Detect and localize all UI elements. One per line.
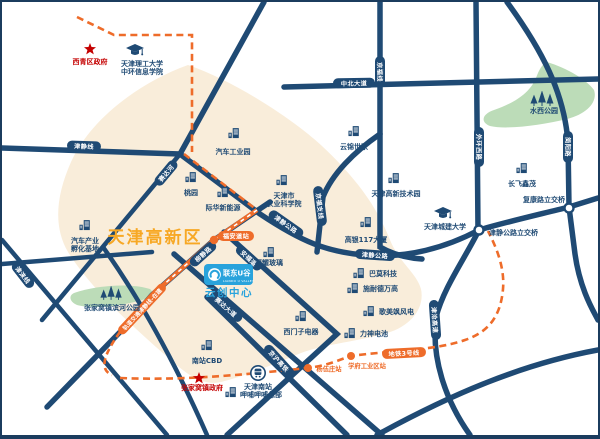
poi-label: 呷哺呷哺总部 (240, 390, 282, 399)
svg-text:外环西路: 外环西路 (474, 134, 482, 161)
poi-label: 高银117大厦 (345, 235, 389, 244)
station-dot-fuandao (210, 236, 218, 244)
poi-yunjin-shijia: 云锦世家 (340, 126, 369, 151)
railway-station-icon (251, 366, 265, 380)
graduation-cap-icon-chengjian (434, 207, 452, 218)
center-name: 云创中心 (205, 286, 253, 299)
poi-label: 长飞鑫茂 (508, 179, 536, 188)
svg-text:津静线: 津静线 (74, 142, 94, 151)
logo-brand-text: 联东U谷 (223, 269, 251, 278)
poi-label: 西门子电器 (284, 327, 320, 336)
svg-text:福安道站: 福安道站 (222, 233, 250, 241)
poi-label: 天津市 (274, 191, 295, 200)
station-dot-xuefu (347, 352, 355, 360)
poi-label: 汽车工业园 (216, 147, 251, 156)
road-pill-jingfu: 京福线 (375, 56, 385, 88)
road-pill-jinjing-line: 津静线 (67, 140, 101, 151)
location-map: 津静线 中北大道 京福线 外环西路 简阳路 京福支线 津静公路 津静公路 津沧高… (0, 0, 600, 439)
label-shuixi-park: 水西公园 (530, 106, 558, 115)
metro-pill-line3: 地铁3号线 (382, 347, 426, 359)
jinjing-interchange-node (475, 226, 484, 235)
shuixi-park-area (484, 62, 595, 127)
poi-bamo-tech: 巴莫科技 (353, 268, 398, 278)
poi-label: 力神电池 (360, 329, 388, 338)
svg-text:中北大道: 中北大道 (341, 79, 368, 87)
poi-changfei-xinmao: 长飞鑫茂 (508, 163, 536, 188)
road-jingfu-line (380, 2, 422, 259)
road-pill-zhongbei: 中北大道 (333, 78, 375, 89)
poi-gamesa-wind: 歌美飒风电 (363, 306, 414, 316)
label-fukang-interchange: 复康路立交桥 (522, 195, 566, 204)
graduation-cap-icon-tjut (126, 44, 144, 55)
poi-lishen-battery: 力神电池 (344, 328, 388, 338)
building-icon (348, 126, 358, 136)
fukang-interchange-node (565, 204, 574, 213)
label-jinjing-interchange: 津静公路立交桥 (489, 228, 539, 237)
svg-text:京福线: 京福线 (375, 62, 383, 82)
poi-label: 施耐德万高 (363, 284, 398, 293)
metro-pill-fuandao-station: 福安道站 (218, 231, 254, 241)
road-jianyang (507, 2, 598, 320)
poi-label: 云锦世家 (340, 142, 369, 151)
label-binhe-park: 张家窝镇滨河公园 (84, 303, 140, 312)
map-canvas: 津静线 中北大道 京福线 外环西路 简阳路 京福支线 津静公路 津静公路 津沧高… (2, 2, 598, 435)
logo-brand-en-text: LIANDO U VALLEY (223, 279, 254, 283)
label-chengjian-univ: 天津城建大学 (424, 222, 466, 231)
label-zhangjiawo-gov: 张家窝镇政府 (181, 383, 223, 392)
label-tjut-line2: 中环信息学院 (121, 67, 163, 76)
road-waihuan-west (476, 2, 478, 230)
station-dot-yangwuzhuang (304, 364, 312, 372)
zone-title: 天津高新区 (108, 227, 203, 248)
poi-label: 孵化基地 (71, 244, 99, 253)
poi-label: 农业科学院 (266, 199, 302, 208)
poi-label: 桃园 (184, 188, 198, 197)
svg-text:地铁3号线: 地铁3号线 (388, 349, 420, 359)
poi-label: 际华新能源 (206, 203, 241, 212)
road-pill-jianyang: 简阳路 (563, 131, 573, 163)
building-icon (388, 173, 398, 183)
road-pill-waihuan-west: 外环西路 (474, 127, 484, 167)
poi-label: 福耀玻璃 (254, 258, 283, 267)
building-icon (516, 163, 526, 173)
poi-label: 汽车产业 (71, 236, 99, 245)
poi-label: 巴莫科技 (369, 269, 398, 278)
star-icon-xiqing (84, 43, 96, 54)
building-icon (225, 387, 235, 397)
label-xiqing-gov: 西青区政府 (73, 57, 108, 66)
road-southeast-corner (377, 350, 598, 435)
svg-text:简阳路: 简阳路 (563, 137, 571, 157)
poi-label: 歌美飒风电 (379, 307, 414, 316)
label-tjut-line1: 天津理工大学 (121, 59, 163, 68)
liando-logo: 联东U谷 LIANDO U VALLEY (204, 264, 254, 285)
label-tianjin-south-station: 天津南站 (244, 382, 272, 391)
poi-label: 南站CBD (192, 356, 222, 365)
poi-label: 天津高新技术园 (372, 189, 421, 198)
station-label-yangwuzhuang: 杨伍庄站 (316, 364, 342, 373)
station-label-xuefu: 学府工业区站 (348, 361, 386, 370)
poi-schneider-wangao: 施耐德万高 (347, 283, 398, 293)
